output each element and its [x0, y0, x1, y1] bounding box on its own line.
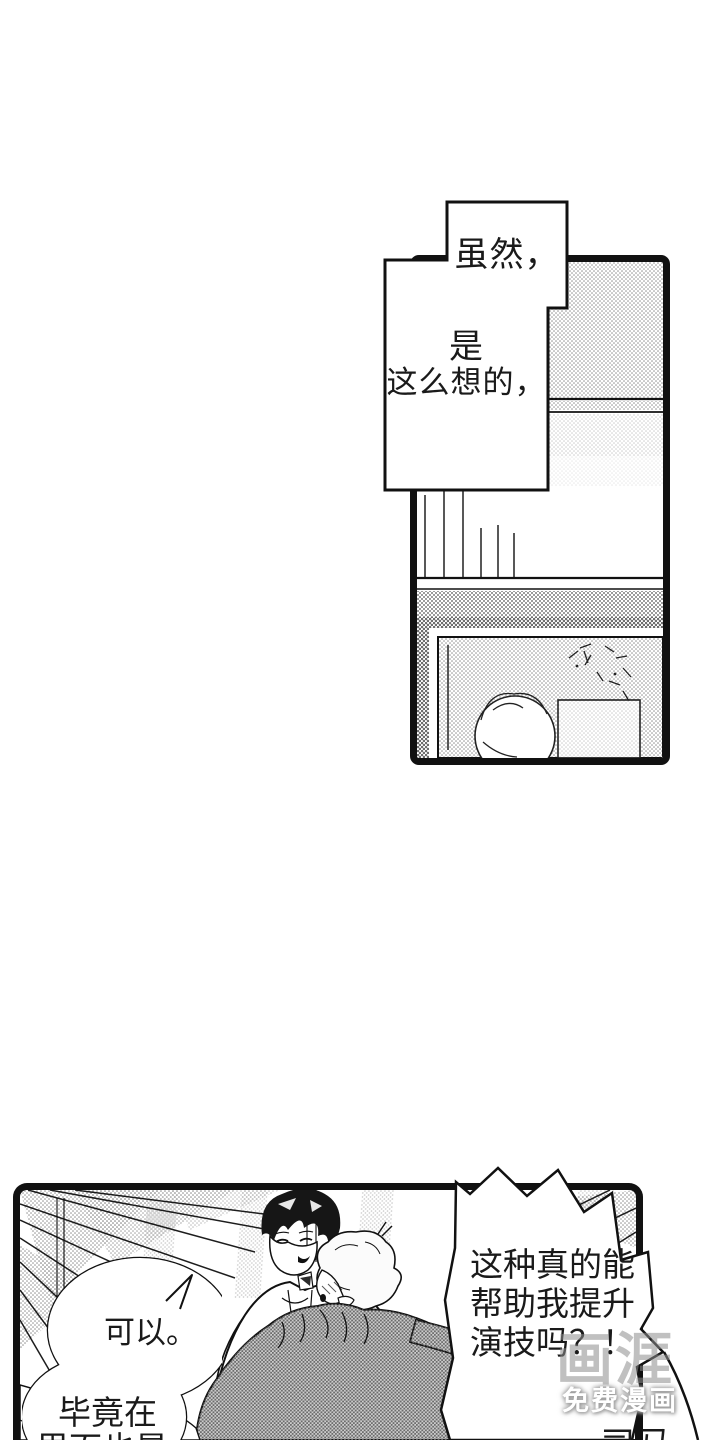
bubble-left-line-3: 里面也是	[36, 1429, 168, 1440]
caption-line-3: 这么想的，	[385, 364, 548, 402]
watermark-tagline: 免费漫画	[562, 1379, 678, 1418]
bubble-corner-line-1: 司马	[601, 1426, 675, 1440]
caption-line-1: 虽然，	[447, 236, 567, 274]
bubble-left-line-2: 毕竟在	[58, 1393, 157, 1432]
comic-page: 虽然， 是 这么想的，	[0, 0, 720, 1440]
bubble-right-line-1: 这种真的能	[470, 1245, 650, 1284]
caption-line-2: 是	[385, 328, 548, 366]
bubble-left-line-1: 可以。	[104, 1313, 197, 1352]
